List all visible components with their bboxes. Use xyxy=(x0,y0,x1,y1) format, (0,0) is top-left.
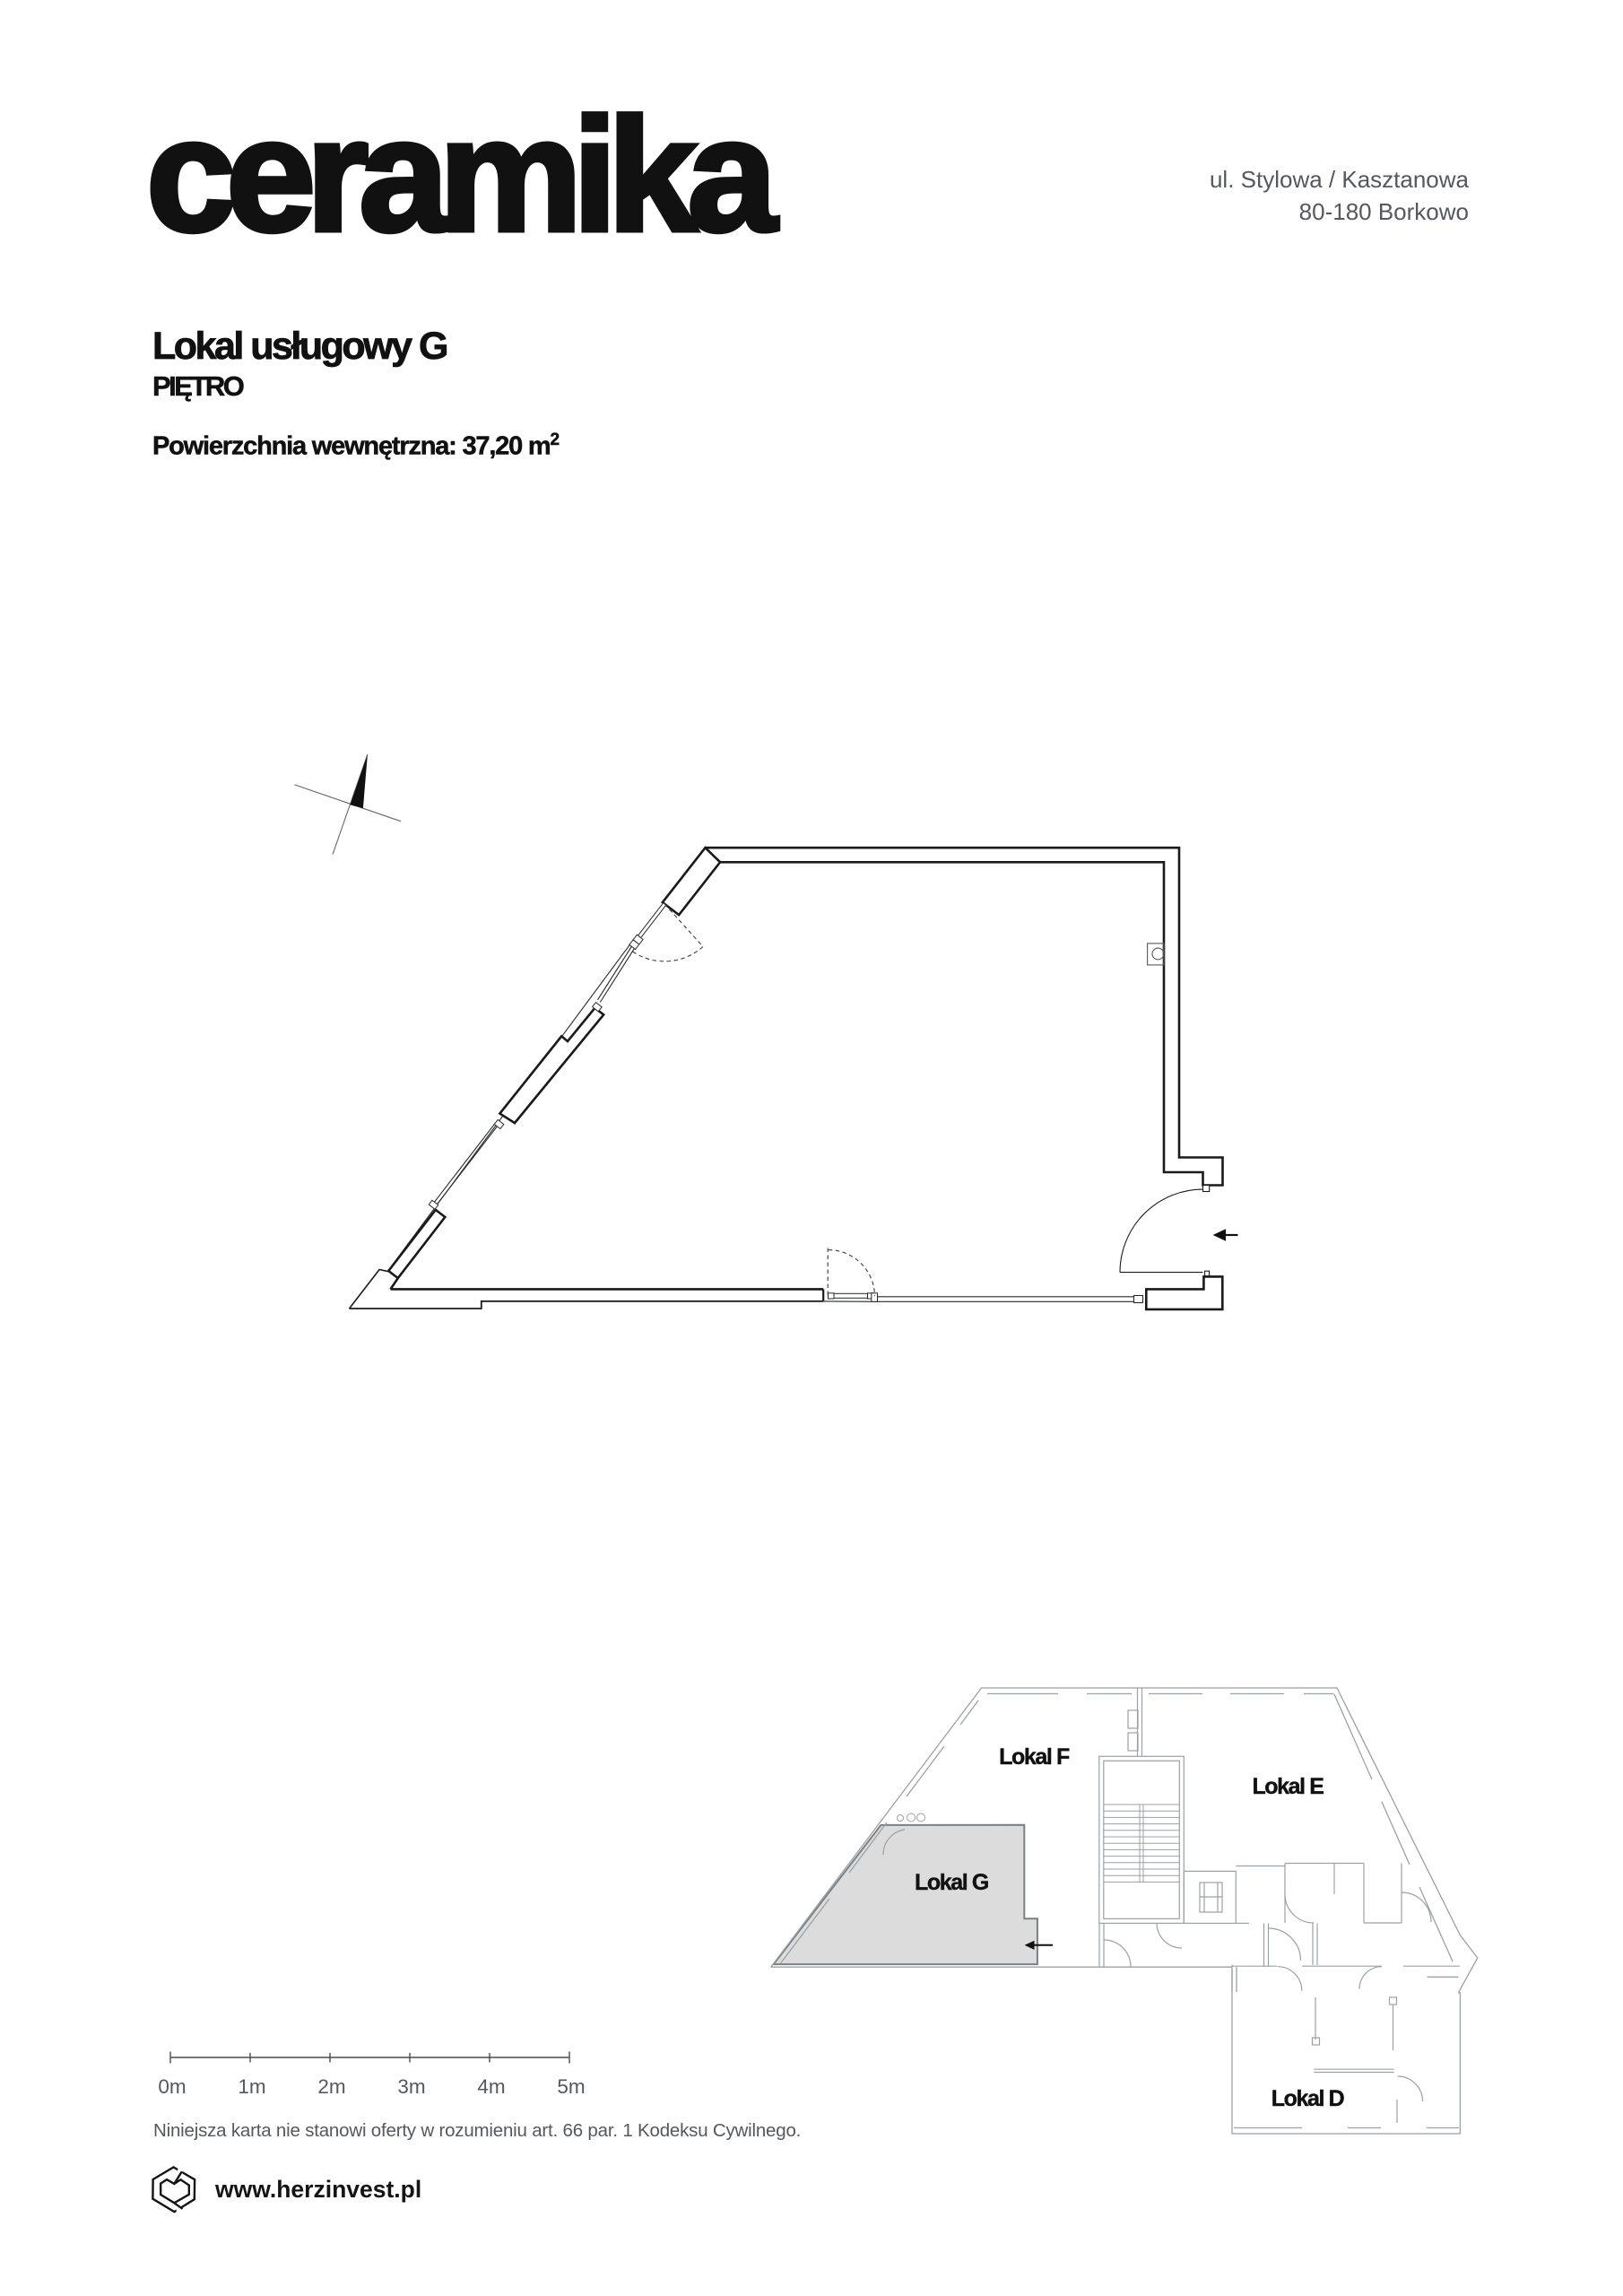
svg-text:Lokal E: Lokal E xyxy=(1252,1774,1324,1799)
svg-text:3m: 3m xyxy=(397,2075,425,2098)
svg-text:2m: 2m xyxy=(317,2075,345,2098)
svg-text:Lokal F: Lokal F xyxy=(999,1744,1070,1770)
svg-text:4m: 4m xyxy=(477,2075,505,2098)
svg-text:5m: 5m xyxy=(557,2075,585,2098)
svg-text:Lokal D: Lokal D xyxy=(1271,2086,1344,2111)
svg-text:0m: 0m xyxy=(158,2075,186,2098)
svg-text:Lokal G: Lokal G xyxy=(915,1870,988,1895)
svg-text:1m: 1m xyxy=(238,2075,265,2098)
